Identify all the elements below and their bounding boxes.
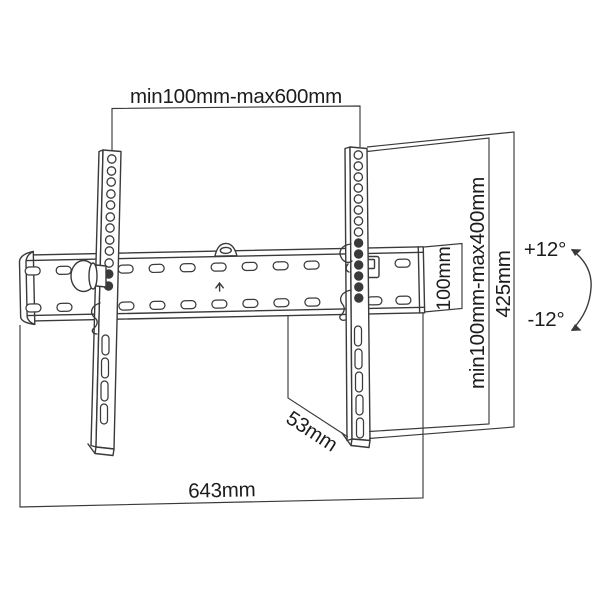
vesa-height-label: min100mm-max400mm — [466, 177, 489, 389]
mount-diagram: min100mm-max600mm min100mm-max400mm 425m… — [0, 0, 600, 600]
dimension-top-width: min100mm-max600mm — [112, 85, 360, 151]
plate-height-label: 100mm — [433, 246, 455, 310]
total-height-label: 425mm — [492, 250, 515, 317]
tilt-up-label: +12° — [524, 238, 566, 261]
hanging-hook — [215, 243, 237, 256]
tilt-range-indicator: +12° -12° — [524, 238, 591, 331]
right-bracket-bottom-cap — [351, 439, 370, 448]
left-bracket-bottom-cap — [95, 447, 114, 456]
top-width-label: min100mm-max600mm — [130, 85, 342, 108]
tilt-tension-knob — [71, 261, 106, 292]
diagram-canvas: min100mm-max600mm min100mm-max400mm 425m… — [0, 0, 600, 600]
dimension-depth: 53mm — [282, 316, 348, 456]
dimension-plate-height: 100mm — [424, 244, 462, 313]
tilt-arc-arrow — [572, 250, 591, 330]
total-width-label: 643mm — [188, 478, 256, 503]
tilt-down-label: -12° — [527, 308, 564, 331]
